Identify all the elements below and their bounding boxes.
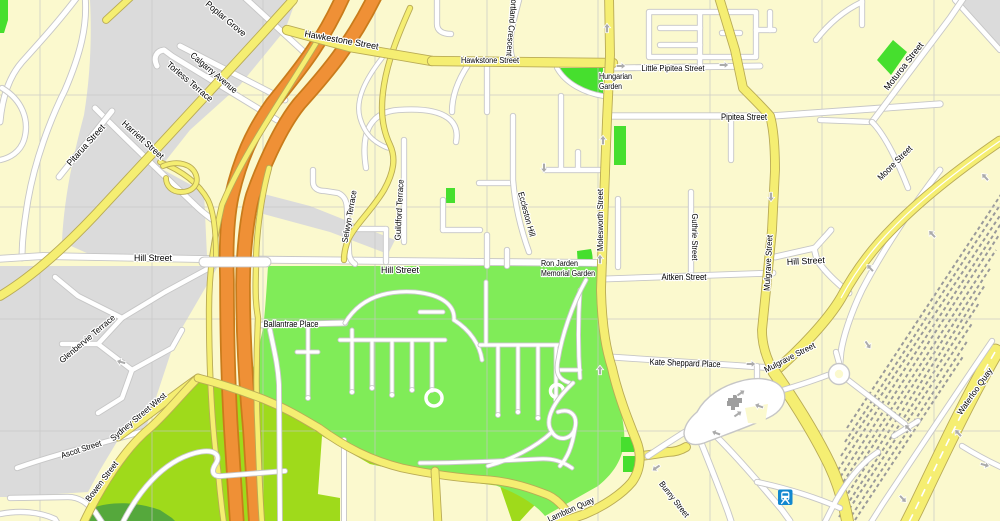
svg-text:Hill Street: Hill Street bbox=[134, 253, 172, 263]
svg-text:Ballantrae Place: Ballantrae Place bbox=[264, 319, 319, 329]
svg-text:Hawkstone Street: Hawkstone Street bbox=[461, 55, 520, 65]
svg-text:Aitken Street: Aitken Street bbox=[662, 272, 707, 282]
svg-text:Molesworth Street: Molesworth Street bbox=[595, 188, 605, 251]
svg-text:Memorial Garden: Memorial Garden bbox=[541, 268, 595, 278]
svg-text:Hill Street: Hill Street bbox=[787, 255, 826, 267]
svg-text:Hungarian: Hungarian bbox=[599, 71, 632, 81]
svg-text:Ron Jarden: Ron Jarden bbox=[541, 258, 578, 268]
svg-text:Pipitea Street: Pipitea Street bbox=[721, 112, 767, 122]
svg-text:Garden: Garden bbox=[599, 81, 622, 91]
svg-text:Hill Street: Hill Street bbox=[381, 265, 419, 275]
svg-text:Guthrie Street: Guthrie Street bbox=[690, 214, 700, 262]
svg-text:Little Pipitea Street: Little Pipitea Street bbox=[642, 63, 706, 73]
